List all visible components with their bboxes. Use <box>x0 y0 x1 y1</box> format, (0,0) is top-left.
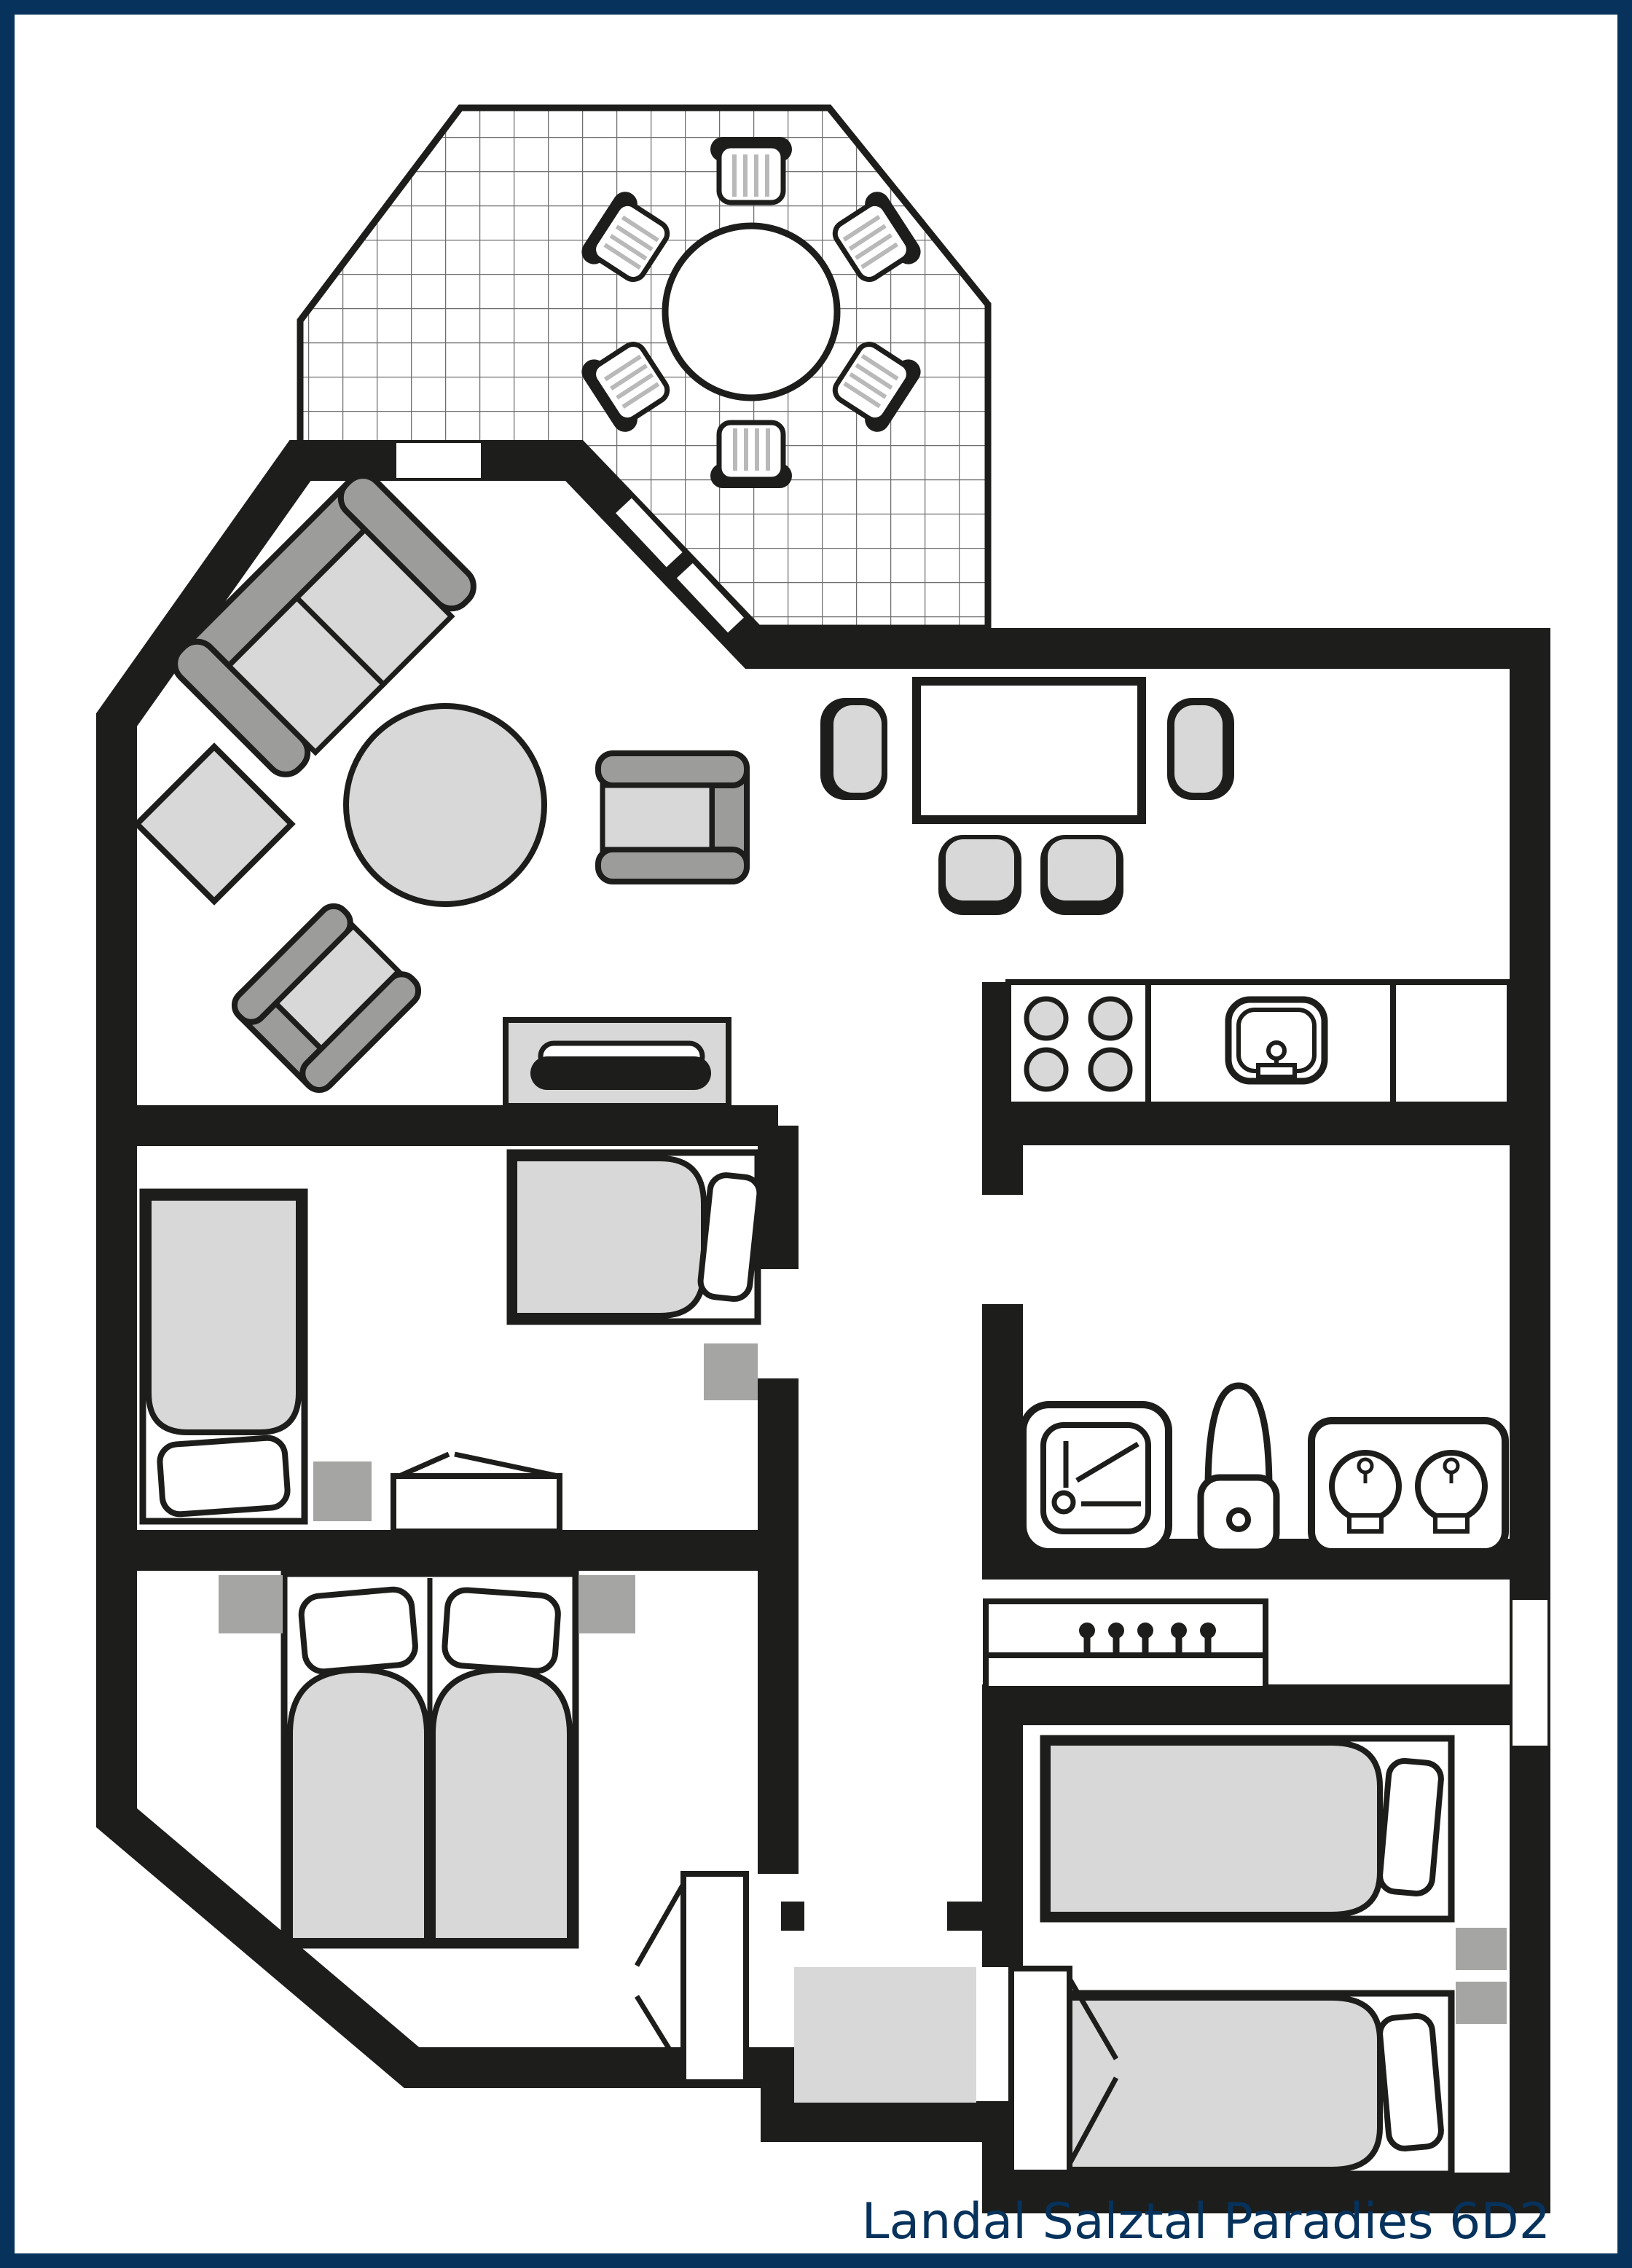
double-bed <box>284 1574 576 1945</box>
terrace-chair <box>710 137 792 203</box>
shower <box>1023 1405 1169 1552</box>
round-coffee-table <box>346 706 544 904</box>
toilet <box>1201 1386 1276 1552</box>
nightstand <box>313 1461 372 1521</box>
dining-chair-bottom-2 <box>1040 835 1123 915</box>
bedroom-1 <box>143 1153 761 1531</box>
plan-title: Landal Salztal Paradies 6D2 <box>862 2193 1550 2251</box>
armchair-east <box>598 753 747 882</box>
dining-area <box>820 681 1234 915</box>
nightstand <box>1456 1982 1507 2024</box>
bathroom <box>1023 1386 1505 1552</box>
terrace-round-table <box>665 226 837 398</box>
kitchen <box>1008 982 1510 1104</box>
wardrobe <box>393 1454 560 1531</box>
east-wall-window <box>1513 1600 1547 1746</box>
dining-chair-bottom-1 <box>938 835 1021 915</box>
bed-3a <box>1043 1738 1451 1919</box>
nightstand <box>704 1343 758 1400</box>
nightstand <box>219 1575 283 1633</box>
floorplan-svg: Landal Salztal Paradies 6D2 <box>15 15 1617 2253</box>
coat-rack <box>986 1601 1266 1689</box>
floorplan-frame: Landal Salztal Paradies 6D2 <box>0 0 1632 2268</box>
armchair-southwest <box>229 900 425 1096</box>
kitchen-sink <box>1228 1000 1325 1081</box>
terrace-chair <box>710 423 792 488</box>
floorplan-canvas: Landal Salztal Paradies 6D2 <box>15 15 1617 2253</box>
dining-table <box>917 681 1142 820</box>
bed-1b <box>143 1192 305 1521</box>
dining-chair-right <box>1167 698 1234 800</box>
bed-3b <box>1043 1993 1451 2174</box>
nightstand <box>578 1575 635 1633</box>
entry-vestibule <box>794 1967 976 2103</box>
tv-sideboard <box>506 1020 729 1106</box>
side-table <box>137 747 291 901</box>
hallway <box>986 1601 1266 1689</box>
double-washbasin <box>1311 1421 1505 1552</box>
doormat <box>794 1967 976 2103</box>
nightstand <box>1456 1928 1507 1970</box>
bed-1a <box>510 1153 761 1322</box>
dining-chair-left <box>820 698 887 800</box>
terrace-door-divider <box>675 560 685 570</box>
bedroom-2 <box>219 1574 746 2082</box>
bedroom-3 <box>1011 1738 1507 2174</box>
tv-body <box>530 1056 711 1090</box>
living-room-window <box>396 443 481 478</box>
